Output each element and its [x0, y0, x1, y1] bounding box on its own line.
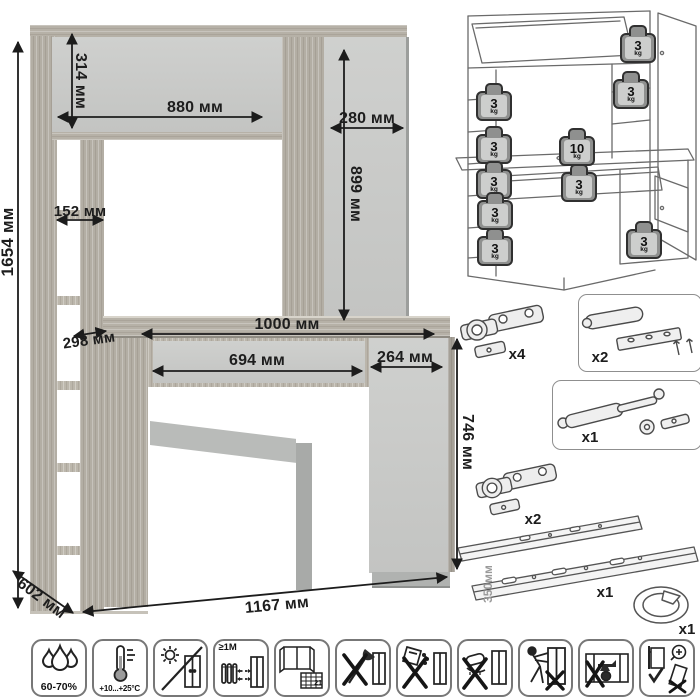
no-abrasives-icon	[396, 639, 452, 697]
weight-label: 3kg	[566, 176, 592, 198]
no-dragging-icon	[518, 639, 574, 697]
heat-distance-icon: ≥1М	[213, 639, 269, 697]
desk-left-support	[104, 334, 148, 607]
weight-label: 3kg	[618, 83, 644, 105]
furniture-dimension-sheet: 1654 мм 314 мм 880 мм 280 мм 899 мм 152 …	[0, 0, 700, 700]
niche-right-panel	[282, 37, 324, 323]
pedestal-plinth	[372, 572, 450, 588]
dimension-pedestal-width: 264 мм	[362, 349, 448, 367]
weight-label: 10kg	[564, 140, 590, 162]
no-wet-cloth-icon	[457, 639, 513, 697]
humidity-label: 60-70%	[33, 681, 85, 693]
damper-box: x2	[578, 294, 700, 372]
care-icon-row: 60-70% +10...+25°C	[31, 639, 695, 697]
dimension-desktop-width: 1000 мм	[239, 316, 335, 334]
no-sunlight-icon	[153, 639, 209, 697]
weight-label: 3kg	[481, 95, 507, 117]
slides-qty: x1	[588, 584, 622, 601]
temperature-icon: +10...+25°C	[92, 639, 148, 697]
dimension-shelf-opening-width: 152 мм	[37, 203, 123, 220]
load-weight: 3kg	[626, 229, 662, 259]
dimension-desk-height: 746 мм	[458, 394, 476, 490]
dimension-total-width: 1167 мм	[228, 592, 325, 619]
gas-lift-qty: x1	[573, 429, 607, 446]
hinge-top-qty: x4	[500, 346, 534, 363]
dimension-right-column-width: 280 мм	[323, 110, 411, 128]
pedestal-door	[369, 337, 448, 573]
ventilation-icon: 21	[274, 639, 330, 697]
weight-label: 3kg	[482, 204, 508, 226]
load-weight: 3kg	[561, 172, 597, 202]
pedestal-inner-side	[296, 443, 312, 590]
dimension-right-column-height: 899 мм	[346, 148, 364, 240]
hinge-bottom-qty: x2	[516, 511, 550, 528]
dimension-top-cabinet-height: 314 мм	[71, 37, 89, 125]
load-weight: 3kg	[476, 91, 512, 121]
weight-label: 3kg	[625, 37, 651, 59]
load-weight: 3kg	[476, 134, 512, 164]
grommet-qty: x1	[670, 621, 700, 638]
weight-label: 3kg	[631, 233, 657, 255]
damper-qty: x2	[583, 349, 617, 366]
no-sharp-tools-icon	[335, 639, 391, 697]
right-column-front	[324, 37, 409, 323]
wall-anchor-icon	[639, 639, 695, 697]
load-weight: 3kg	[477, 236, 513, 266]
weight-label: 3kg	[482, 240, 508, 262]
temperature-label: +10...+25°C	[94, 684, 146, 693]
no-overload-icon	[578, 639, 634, 697]
load-weight: 3kg	[613, 79, 649, 109]
heat-distance-label: ≥1М	[218, 642, 236, 653]
dimension-total-height: 1654 мм	[0, 182, 18, 302]
top-cabinet-bottom-board	[52, 132, 282, 140]
load-weight: 3kg	[477, 200, 513, 230]
desk-back-panel	[150, 421, 296, 463]
slides-length-label: 350мм	[481, 556, 495, 612]
dimension-top-door-width: 880 мм	[150, 99, 240, 117]
humidity-icon: 60-70%	[31, 639, 87, 697]
gas-lift-box: x1	[552, 380, 700, 450]
ventilation-days-label: 21	[314, 680, 322, 687]
weight-label: 3kg	[481, 138, 507, 160]
load-weight: 3kg	[620, 33, 656, 63]
dimension-drawer-width: 694 мм	[214, 352, 300, 370]
load-weight: 10kg	[559, 136, 595, 166]
